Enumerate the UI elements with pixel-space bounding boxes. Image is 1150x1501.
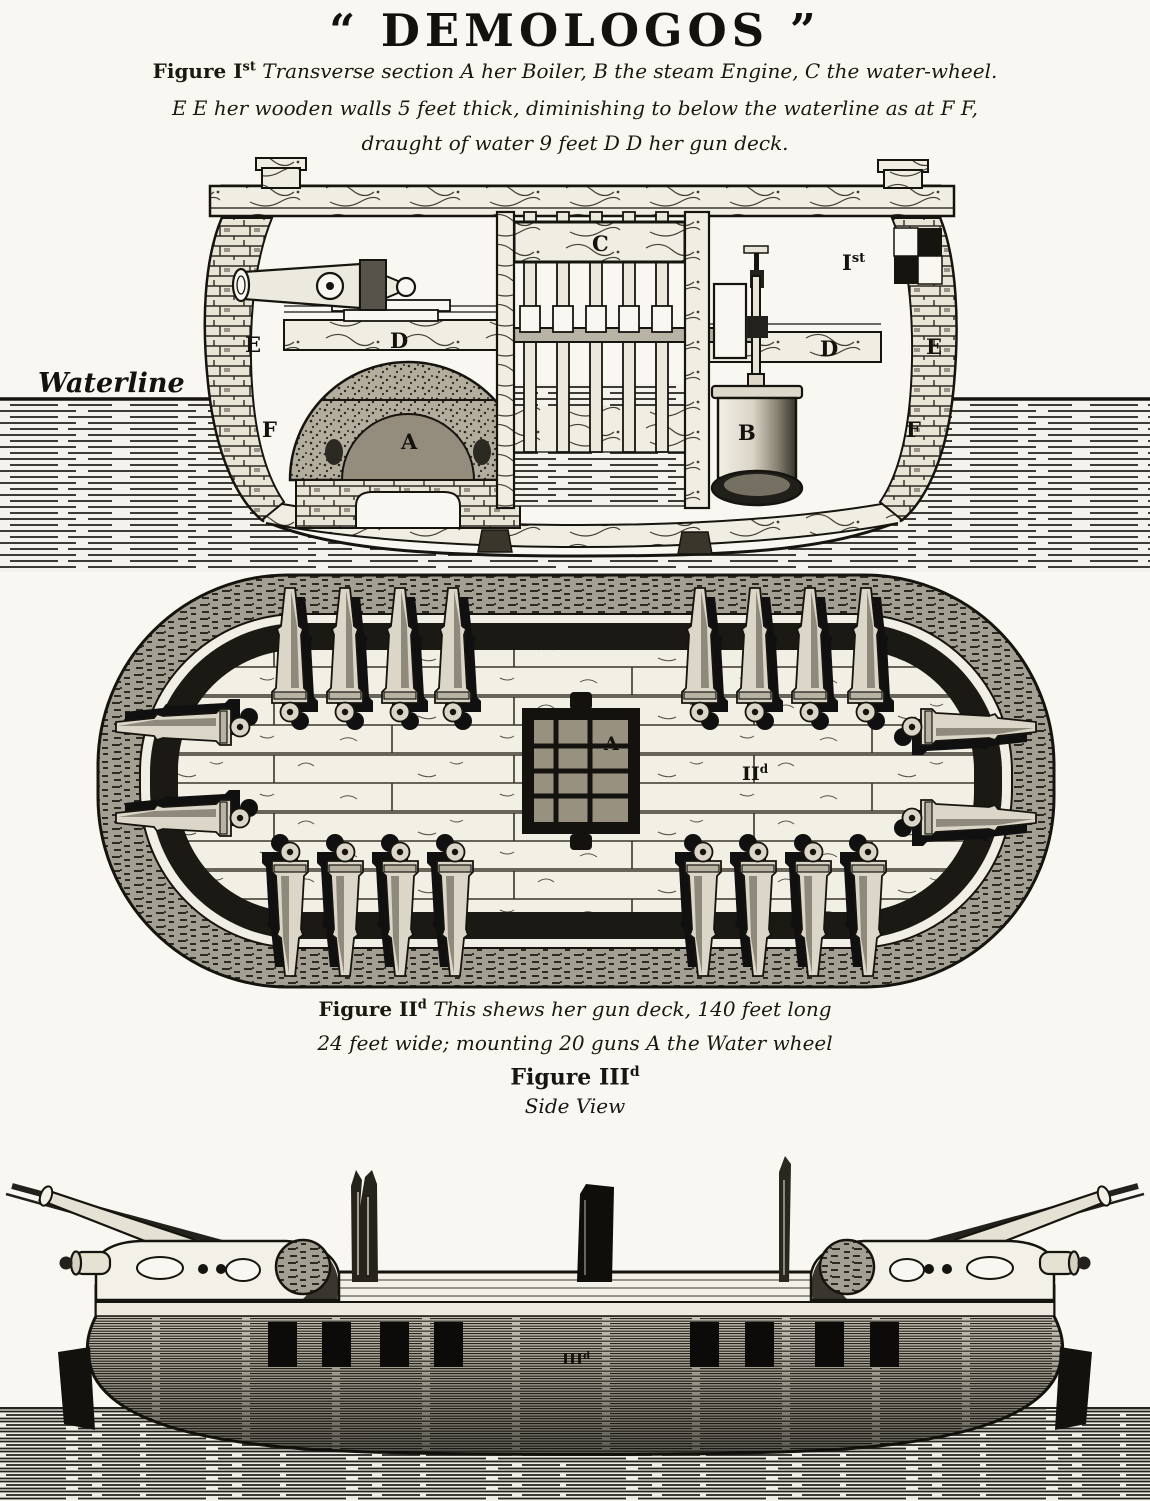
- fig2-caption-line2: 24 feet wide; mounting 20 guns A the Wat…: [0, 1031, 1150, 1055]
- label-f-left: F: [262, 417, 277, 442]
- top-deck-beam: [210, 158, 954, 216]
- label-e-right: E: [926, 334, 942, 359]
- fig1-caption-line1: Figure Ist Transverse section A her Boil…: [0, 59, 1150, 83]
- wall-checker: [894, 228, 942, 284]
- waterwheel-housing: [522, 692, 640, 850]
- label-e-left: E: [245, 332, 261, 357]
- cannon-cascabel: [397, 278, 415, 296]
- figure-3-side-view: IIId: [0, 1128, 1150, 1501]
- engraving-page: “ DEMOLOGOS ” Figure Ist Transverse sect…: [0, 0, 1150, 1501]
- funnel: [577, 1184, 614, 1282]
- figure-1-transverse-section: Waterline E D C Ist D E F F A B: [0, 156, 1150, 580]
- center-post-left: [497, 212, 514, 508]
- label-a-waterwheel: A: [603, 733, 619, 755]
- fig3-subheading: Side View: [0, 1094, 1150, 1118]
- fig1-caption-line2: E E her wooden walls 5 feet thick, dimin…: [0, 96, 1150, 120]
- boiler-port: [325, 439, 343, 465]
- page-title: “ DEMOLOGOS ”: [0, 4, 1150, 57]
- broken-mast-right: [779, 1156, 791, 1282]
- label-d-left: D: [390, 328, 408, 353]
- boiler-port: [473, 439, 491, 465]
- fig1-caption-line3: draught of water 9 feet D D her gun deck…: [0, 131, 1150, 155]
- label-waterline: Waterline: [38, 368, 185, 399]
- label-d-right: D: [820, 336, 838, 361]
- keel-foot: [478, 530, 512, 552]
- label-c: C: [592, 231, 609, 256]
- center-post-right: [685, 212, 709, 508]
- figure-2-gun-deck-plan: A IId: [0, 565, 1150, 995]
- fig3-heading: Figure IIId: [0, 1064, 1150, 1090]
- label-a-boiler: A: [400, 429, 418, 454]
- label-b-engine: B: [738, 420, 756, 445]
- label-f-right: F: [906, 417, 921, 442]
- cannon-muzzle: [233, 269, 249, 301]
- keel-foot: [678, 532, 712, 554]
- masts-and-funnel: [351, 1156, 791, 1282]
- broken-mast-left: [351, 1170, 378, 1282]
- fig2-caption-line1: Figure IId This shews her gun deck, 140 …: [0, 997, 1150, 1021]
- condenser-cylinder: [718, 398, 796, 478]
